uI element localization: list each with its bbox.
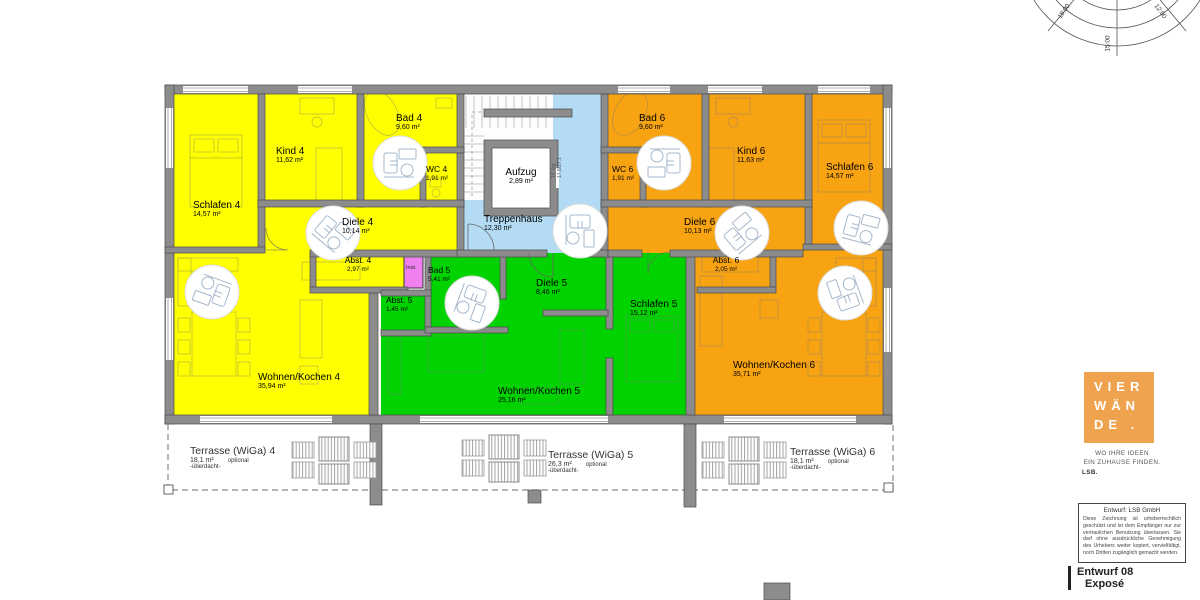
room-label: Diele 610,13 m² (684, 217, 715, 236)
logo-tagline: WO IHRE IDEEN EIN ZUHAUSE FINDEN. LSB. (1072, 449, 1172, 477)
terrace-label: Terrasse (WiGa) 6 18,1 m²optional -überd… (790, 446, 875, 471)
room-label: Bad 49,60 m² (396, 113, 422, 132)
vier-waende-logo: VIER WÄN DE . (1084, 372, 1154, 443)
room-label: Schlafen 414,57 m² (193, 200, 240, 219)
room-label: Wohnen/Kochen 525,16 m² (498, 386, 580, 405)
terrace-label: Terrasse (WiGa) 5 26,3 m²optional -überd… (548, 449, 633, 474)
room-label: Kind 611,63 m² (737, 146, 765, 165)
room-label: Bad 55,41 m² (428, 266, 450, 283)
floorplan-page: Schlafen 414,57 m² Kind 411,62 m² Bad 49… (0, 0, 1200, 600)
room-label: WC 41,91 m² (426, 165, 448, 182)
room-label: Schlafen 614,57 m² (826, 162, 873, 181)
room-label: Schlafen 515,12 m² (630, 299, 677, 318)
room-label: WC 61,91 m² (612, 165, 634, 182)
terrace-label: Terrasse (WiGa) 4 18,1 m²optional -überd… (190, 445, 275, 470)
trellis (292, 435, 786, 484)
room-label: Abst. 62,05 m² (696, 256, 756, 273)
room-label: Diele 410,14 m² (342, 217, 373, 236)
room-label: Kind 411,62 m² (276, 146, 304, 165)
room-label: Diele 58,46 m² (536, 278, 567, 297)
room-label: Bad 69,60 m² (639, 113, 665, 132)
room-label: Abst. 51,45 m² (386, 296, 412, 313)
stairs-note: 16 Stg17,8/27,1 (552, 157, 563, 178)
room-label: Aufzug2,89 m² (491, 167, 551, 186)
sun-time-label: 15:00 (1105, 35, 1112, 51)
room-label: Treppenhaus12,30 m² (484, 214, 543, 233)
copyright-disclaimer: Entwurf: LSB GmbH Diese Zeichnung ist ur… (1078, 503, 1186, 563)
room-label: Wohnen/Kochen 435,94 m² (258, 372, 340, 391)
floorplan-drawing (0, 0, 1200, 600)
room-label: Abst. 42,97 m² (328, 256, 388, 273)
title-block: Entwurf 08 Exposé (1068, 566, 1133, 590)
inst-shaft (404, 256, 423, 288)
room-label: Wohnen/Kochen 635,71 m² (733, 360, 815, 379)
inst-shaft-label: Inst. (406, 265, 416, 271)
